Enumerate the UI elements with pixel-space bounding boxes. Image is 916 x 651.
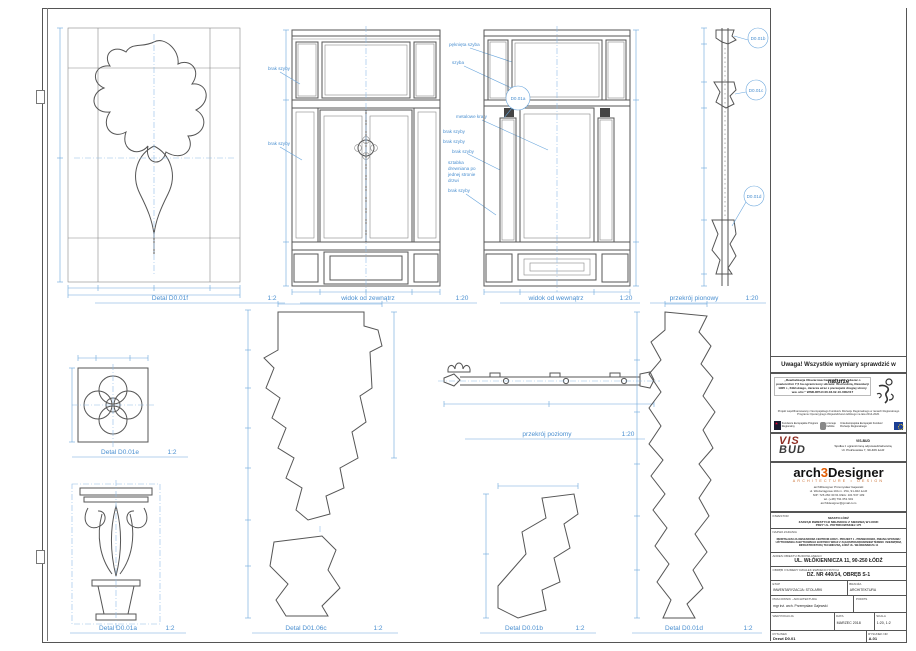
detail-b-scale: 1:2 (575, 625, 584, 632)
row-etap-branza: ETAP INWENTARYZACJA: STOLARKI BRANŻA ARC… (771, 581, 906, 596)
annotation-metal-grilles: metalowe kraty (456, 114, 488, 119)
branza-value: ARCHITEKTURA (848, 585, 906, 595)
annotation-middle-column: pęknięta szyba szyba metalowe kraty brak… (443, 42, 548, 215)
vertical-section-drawing: D0.01b D0.01c D0.01d (701, 28, 768, 286)
detail-a-title: Detal D0.01a (99, 625, 137, 632)
inwestor-value: MIASTO ŁÓDŹ ZARZĄD INWESTYCJI MIEJSKICH … (771, 517, 906, 528)
view-exterior-scale: 1:20 (456, 295, 469, 302)
nazwa-value: REWITALIZACJA OBSZAROWA CENTRUM ŁODZI - … (771, 533, 906, 552)
detail-f-ornament-drawing (57, 28, 240, 298)
lodz-mascot-logo (871, 376, 901, 408)
door-exterior-view-drawing (283, 26, 440, 295)
detail-f-label: Detal D0.01f 1:2 (95, 295, 285, 303)
annotation-no-glass-mid4: brak szyby (448, 188, 471, 193)
row-nazwa-zadania: NAZWA ZADANIA REWITALIZACJA OBSZAROWA CE… (771, 529, 906, 553)
visbud-logo: VIS BUD (779, 437, 806, 455)
detail-d-label: Detal D0.01d 1:2 (632, 625, 762, 633)
row-pracownik-podpis: PRACOWNIK - ARCHITEKTURA mgr inż. arch. … (771, 596, 906, 613)
detail-f-title: Detal D0.01f (152, 295, 188, 302)
detail-b-profile-drawing (483, 483, 578, 618)
eu-project-description: „Rewitalizacja Obszarowa Centrum Łodzi -… (774, 377, 871, 396)
rysunek-nr-value: A.01 (867, 635, 906, 642)
row-obreb: OBRĘB I NUMERY DZIAŁEK EWIDENCYJNYCH DZ.… (771, 567, 906, 581)
vertical-section-label: przekrój pionowy 1:20 (650, 295, 766, 303)
annotation-no-glass-left2: brak szyby (268, 141, 291, 146)
annotation-wood-bar: sztabkadrewniana pojednej stroniedrzwi (447, 160, 476, 183)
eu-project-number: WND-RPLD.06.03.02-10-0002/17 (807, 390, 853, 394)
view-interior-scale: 1:20 (620, 295, 633, 302)
detail-b-label: Detal D0.01b 1:2 (480, 625, 596, 633)
annotation-left-column: brak szyby brak szyby (268, 66, 302, 160)
callout-d001d-text: D0.01d (747, 194, 762, 199)
etap-value: INWENTARYZACJA: STOLARKI (771, 585, 847, 595)
annotation-glass: szyba (452, 60, 464, 65)
pilaster-capital-right (600, 108, 610, 117)
annotation-no-glass-left1: brak szyby (268, 66, 291, 71)
annotation-no-glass-mid2: brak szyby (443, 139, 466, 144)
eu-cofinance-note: Projekt współfinansowany z Europejskiego… (774, 410, 903, 416)
annotation-no-glass-mid3: brak szyby (452, 149, 475, 154)
row-rysunek: RYSUNEK Drzwi D0.01 RYSUNEK NR A.01 (771, 631, 906, 642)
detail-c-scale: 1:2 (373, 625, 382, 632)
detail-e-label: Detal D0.01e 1:2 (72, 449, 188, 457)
drawing-canvas: Detal D0.01f 1:2 (0, 0, 780, 651)
logo-unia-europejska: Unia Europejska Europejski Fundusz Rozwo… (840, 422, 903, 430)
arch3designer-block: arch3Designer ARCHITECTURE • DESIGN arch… (771, 462, 906, 512)
detail-d-title: Detal D0.01d (665, 625, 703, 632)
detail-c-profile-drawing (245, 301, 397, 618)
detail-b-title: Detal D0.01b (505, 625, 543, 632)
visbud-block: VIS BUD VIS-BUD Spółka z ograniczoną odp… (771, 433, 906, 462)
arch3designer-tagline: ARCHITECTURE • DESIGN (771, 479, 906, 483)
weryfikacja-value (771, 617, 834, 630)
view-exterior-title: widok od zewnątrz (340, 295, 394, 302)
dimension-note: Uwaga! Wszystkie wymiary sprawdzić w nat… (771, 356, 906, 373)
visbud-address: VIS-BUD Spółka z ograniczoną odpowiedzia… (823, 439, 903, 452)
vertical-section-scale: 1:20 (746, 295, 759, 302)
detail-c-title: Detal D01.06c (285, 625, 327, 632)
logo-promuje-lodzkie: promuje łódzkie (820, 422, 841, 430)
vertical-section-title: przekrój pionowy (670, 295, 720, 302)
detail-e-scale: 1:2 (167, 449, 176, 456)
horizontal-section-label: przekrój poziomy 1:20 (465, 431, 645, 439)
annotation-no-glass-mid1: brak szyby (443, 129, 466, 134)
detail-d-scale: 1:2 (743, 625, 752, 632)
title-block-table: INWESTOR MIASTO ŁÓDŹ ZARZĄD INWESTYCJI M… (771, 512, 906, 641)
arch3designer-contact: arch3Designer Przemysław Gajewski ul. Wo… (771, 485, 906, 505)
pracownik-value: mgr inż. arch. Przemysław Gajewski (771, 600, 853, 612)
horizontal-section-scale: 1:20 (622, 431, 635, 438)
horizontal-section-drawing (438, 363, 660, 407)
detail-e-rosette-drawing (69, 355, 154, 448)
arch3designer-logo: arch3Designer (771, 465, 906, 480)
title-block: Uwaga! Wszystkie wymiary sprawdzić w nat… (770, 8, 906, 641)
row-weryfikacja-data-skala: WERYFIKACJA DATA MARZEC 2018 SKALA 1:20,… (771, 613, 906, 631)
detail-c-label: Detal D01.06c 1:2 (252, 625, 398, 633)
rysunek-value: Drzwi D0.01 (771, 635, 866, 642)
detail-a-capital-drawing (72, 480, 160, 628)
row-inwestor: INWESTOR MIASTO ŁÓDŹ ZARZĄD INWESTYCJI M… (771, 513, 906, 529)
detail-f-scale: 1:2 (267, 295, 276, 302)
view-interior-title: widok od wewnątrz (528, 295, 584, 302)
skala-value: 1:20, 1:2 (875, 617, 906, 630)
obreb-value: DZ. NR 440/14, OBRĘB S-1 (771, 571, 906, 580)
callout-d001c-text: D0.01c (749, 88, 764, 93)
annotation-broken-glass: pęknięta szyba (449, 42, 480, 47)
door-interior-view-drawing (484, 26, 639, 295)
eu-funding-block: „Rewitalizacja Obszarowa Centrum Łodzi -… (771, 373, 906, 433)
adres-value: UL. WŁÓKIENNICZA 11, 90-250 ŁÓDŹ (771, 557, 906, 566)
view-interior-label: widok od wewnątrz 1:20 (500, 295, 640, 303)
detail-a-label: Detal D0.01a 1:2 (70, 625, 186, 633)
detail-a-scale: 1:2 (165, 625, 174, 632)
horizontal-section-title: przekrój poziomy (522, 431, 572, 438)
data-value: MARZEC 2018 (835, 617, 874, 630)
callout-d001b-text: D0.01b (751, 36, 766, 41)
logo-fundusze-europejskie: Fundusze Europejskie Program Regionalny (774, 421, 820, 430)
view-exterior-label: widok od zewnątrz 1:20 (300, 295, 477, 303)
row-adres: ADRES OBIEKTU BUDOWLANEGO UL. WŁÓKIENNIC… (771, 553, 906, 567)
detail-d-profile-drawing (634, 301, 715, 618)
drawing-sheet: Detal D0.01f 1:2 (0, 0, 916, 651)
podpis-value (854, 600, 906, 612)
detail-e-title: Detal D0.01e (101, 449, 139, 456)
callout-d001a-text: D0.01a (511, 96, 526, 101)
